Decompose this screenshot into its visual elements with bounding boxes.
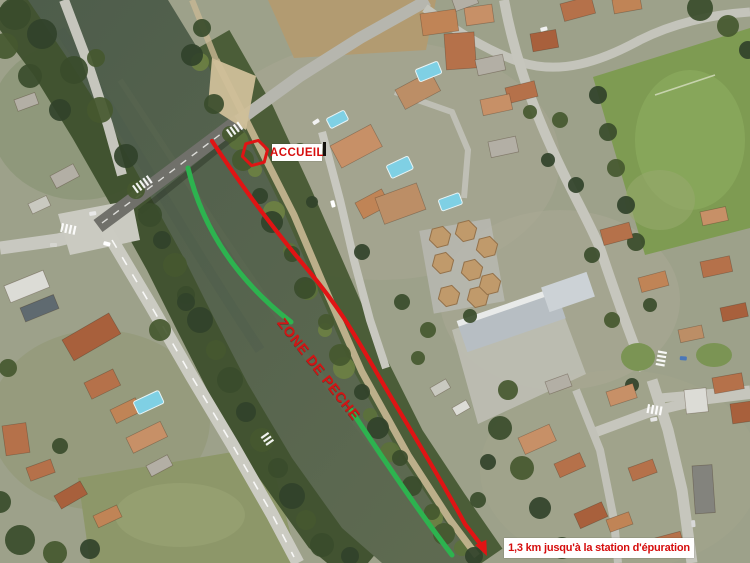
accueil-label: ACCUEIL (272, 144, 322, 161)
aerial-map: ACCUEIL ZONE DE PECHE 1,3 km jusqu'à la … (0, 0, 750, 563)
text-cursor-tick (323, 142, 326, 156)
distance-label: 1,3 km jusqu'à la station d'épuration (504, 538, 694, 558)
satellite-imagery (0, 0, 750, 563)
